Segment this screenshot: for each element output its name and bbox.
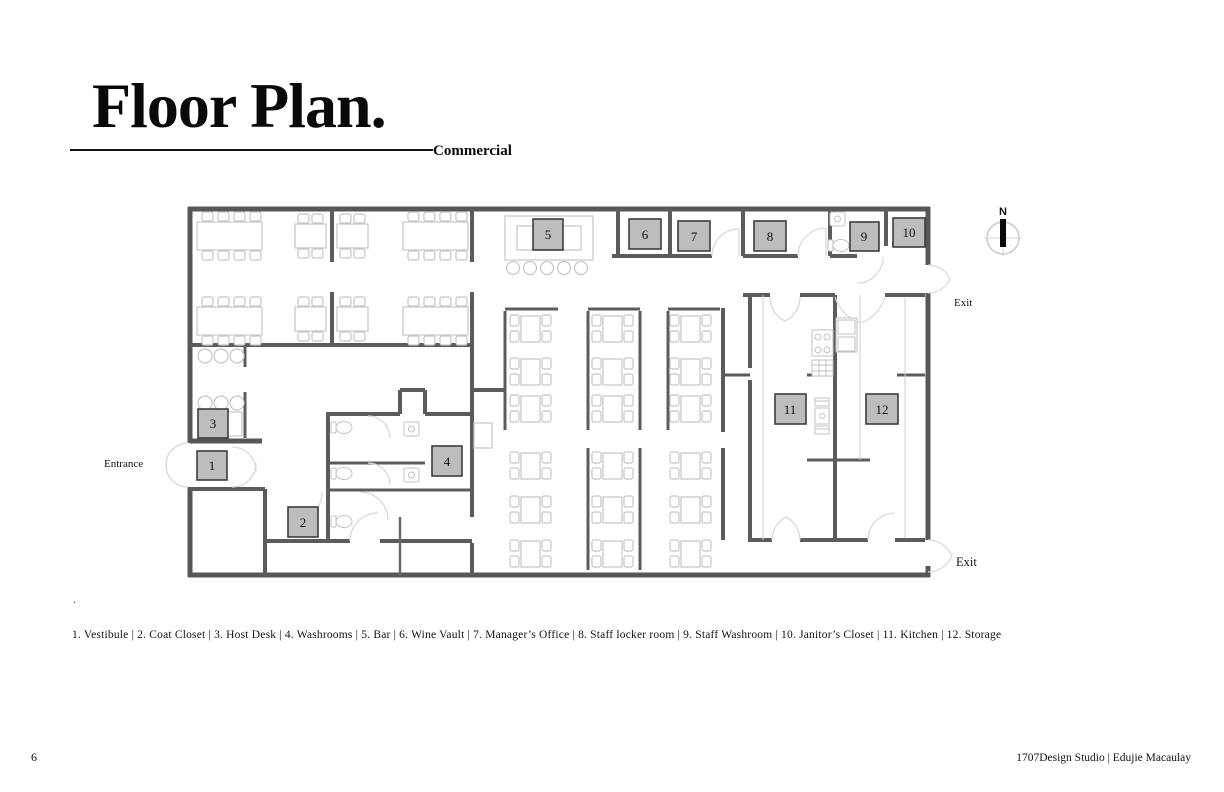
compass-north-label: N <box>999 206 1007 218</box>
svg-text:12: 12 <box>876 402 889 417</box>
svg-text:9: 9 <box>861 229 868 244</box>
exit-top-label: Exit <box>954 297 972 309</box>
host-desk <box>227 412 242 436</box>
svg-text:11: 11 <box>784 402 797 417</box>
page-subtitle: Commercial <box>433 143 512 160</box>
portfolio-page: Floor Plan. Commercial <box>0 0 1224 792</box>
room-label-9: 9 <box>850 222 879 251</box>
exit-bottom-label: Exit <box>956 555 977 569</box>
room-label-5: 5 <box>533 219 563 250</box>
booth-seating <box>198 349 244 410</box>
stray-dot: . <box>73 594 76 606</box>
dining-tables <box>197 212 711 567</box>
room-label-2: 2 <box>288 507 318 537</box>
room-label-4: 4 <box>432 446 462 476</box>
room-label-1: 1 <box>197 451 227 480</box>
svg-text:5: 5 <box>545 227 552 242</box>
svg-text:1: 1 <box>209 458 216 473</box>
room-label-12: 12 <box>866 394 898 424</box>
room-label-3: 3 <box>198 409 228 438</box>
legend-line: 1. Vestibule | 2. Coat Closet | 3. Host … <box>72 629 1001 641</box>
page-title: Floor Plan. <box>92 74 386 138</box>
room-label-6: 6 <box>629 219 661 249</box>
svg-text:8: 8 <box>767 229 774 244</box>
room-label-7: 7 <box>678 221 710 251</box>
floor-plan: 1 2 3 4 5 6 7 8 9 10 11 12 Entrance Exit… <box>60 195 1050 590</box>
wait-station <box>474 423 492 448</box>
page-number: 6 <box>31 750 37 765</box>
room-label-10: 10 <box>893 218 925 247</box>
compass-icon: N <box>984 206 1022 256</box>
svg-text:6: 6 <box>642 227 649 242</box>
svg-text:4: 4 <box>444 454 451 469</box>
svg-text:7: 7 <box>691 229 698 244</box>
svg-text:3: 3 <box>210 416 217 431</box>
credit-line: 1707Design Studio | Edujie Macaulay <box>1016 752 1191 764</box>
entrance-label: Entrance <box>104 458 143 470</box>
svg-text:10: 10 <box>903 225 916 240</box>
svg-text:2: 2 <box>300 515 307 530</box>
room-label-8: 8 <box>754 221 786 251</box>
room-label-11: 11 <box>775 394 806 424</box>
title-underline <box>70 149 433 151</box>
